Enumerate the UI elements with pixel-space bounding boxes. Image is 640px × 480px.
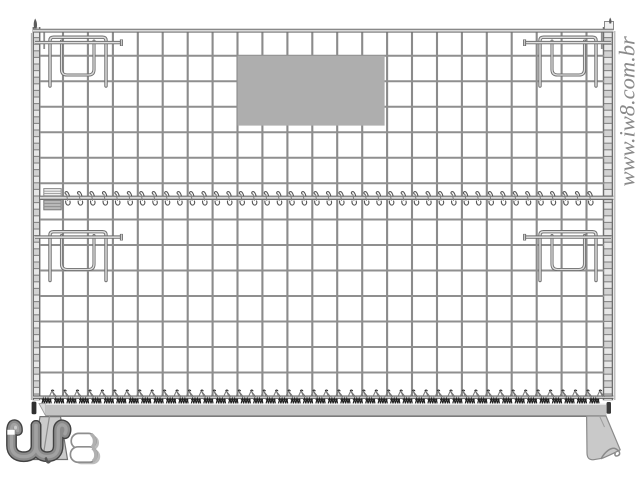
svg-text:www.iw8.com.br: www.iw8.com.br <box>615 36 640 186</box>
